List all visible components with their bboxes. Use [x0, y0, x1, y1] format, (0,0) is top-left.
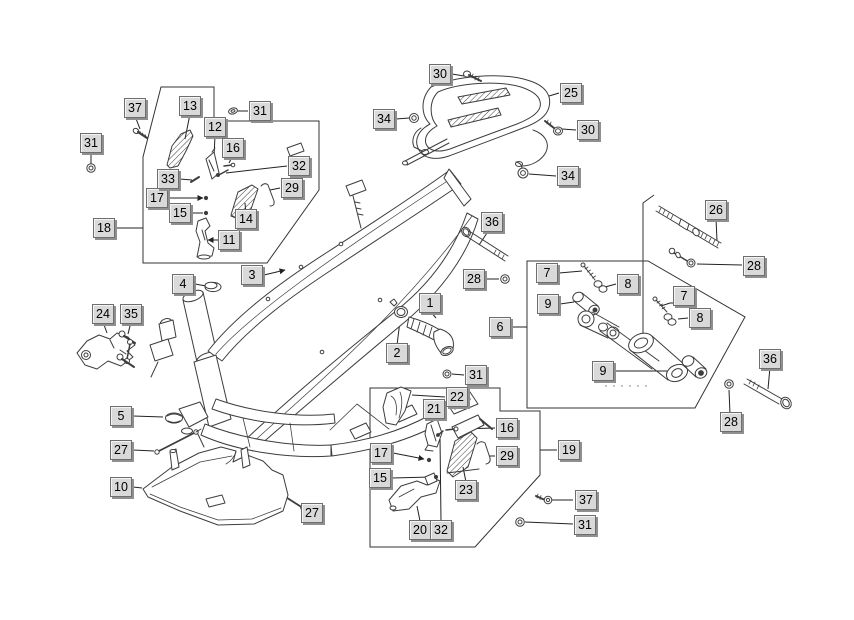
callout-1[interactable]: 1	[419, 293, 441, 313]
parts-diagram-page: 1 2 3 4 5 6 7 7 8 8 9 9 10 11 12 13 14 1…	[0, 0, 854, 620]
callout-7-left[interactable]: 7	[536, 263, 558, 283]
callout-31-bottom[interactable]: 31	[574, 515, 596, 535]
callout-36-upper[interactable]: 36	[481, 212, 503, 232]
callout-27-rear[interactable]: 27	[301, 503, 323, 523]
callout-12[interactable]: 12	[204, 117, 226, 137]
callout-30-right[interactable]: 30	[577, 120, 599, 140]
bolt-part-30-right	[545, 120, 563, 135]
callout-21[interactable]: 21	[423, 399, 445, 419]
callout-14[interactable]: 14	[235, 209, 257, 229]
rod-part-27-front	[155, 429, 201, 454]
callout-29-lower[interactable]: 29	[496, 446, 518, 466]
screw-part-37-bottom	[536, 494, 552, 504]
callout-37-lower[interactable]: 37	[575, 490, 597, 510]
callout-32-lower[interactable]: 32	[430, 520, 452, 540]
callout-34-left[interactable]: 34	[373, 109, 395, 129]
callout-16-lower[interactable]: 16	[496, 418, 518, 438]
callout-34-right[interactable]: 34	[557, 166, 579, 186]
cap-part-4	[205, 282, 221, 291]
callout-17-upper[interactable]: 17	[146, 188, 168, 208]
cap-part-5	[166, 413, 183, 423]
callout-31-top[interactable]: 31	[249, 101, 271, 121]
callout-16-upper[interactable]: 16	[222, 138, 244, 158]
luggage-rack-part-25	[403, 76, 550, 171]
callout-9-right[interactable]: 9	[592, 361, 614, 381]
callout-20[interactable]: 20	[409, 520, 431, 540]
callout-3[interactable]: 3	[241, 265, 263, 285]
nut-part-31-mid	[443, 370, 451, 378]
callout-8-left[interactable]: 8	[617, 274, 639, 294]
callout-8-right[interactable]: 8	[689, 308, 711, 328]
callout-28-left[interactable]: 28	[463, 269, 485, 289]
callout-13[interactable]: 13	[179, 96, 201, 116]
callout-17-lower[interactable]: 17	[370, 443, 392, 463]
nut-part-31-bottom	[516, 518, 525, 527]
floor-panel-part-10	[143, 447, 288, 525]
callout-7-right[interactable]: 7	[673, 286, 695, 306]
nut-part-34-right	[518, 168, 528, 178]
callout-26[interactable]: 26	[705, 200, 727, 220]
callout-36-lower[interactable]: 36	[759, 349, 781, 369]
callout-24[interactable]: 24	[92, 304, 114, 324]
nut-part-28-left	[501, 275, 510, 284]
bolt-washer-part-28-upper	[669, 248, 695, 267]
callout-6[interactable]: 6	[489, 317, 511, 337]
callout-27-front[interactable]: 27	[110, 440, 132, 460]
nut-part-28-lower	[725, 380, 734, 389]
callout-22[interactable]: 22	[446, 387, 468, 407]
callout-35[interactable]: 35	[120, 304, 142, 324]
intake-duct-part-1	[407, 317, 455, 357]
callout-9-left[interactable]: 9	[537, 294, 559, 314]
callout-15-lower[interactable]: 15	[369, 468, 391, 488]
callout-11[interactable]: 11	[218, 230, 240, 250]
callout-4[interactable]: 4	[172, 274, 194, 294]
callout-19[interactable]: 19	[558, 440, 580, 460]
callout-15-upper[interactable]: 15	[169, 203, 191, 223]
callout-30-left[interactable]: 30	[429, 64, 451, 84]
callout-28-bottom[interactable]: 28	[720, 412, 742, 432]
callout-31-mid[interactable]: 31	[465, 365, 487, 385]
callout-18[interactable]: 18	[93, 218, 115, 238]
callout-23[interactable]: 23	[455, 480, 477, 500]
callout-31-far-left[interactable]: 31	[80, 133, 102, 153]
callout-25[interactable]: 25	[560, 83, 582, 103]
callout-28-right[interactable]: 28	[743, 256, 765, 276]
callout-29-upper[interactable]: 29	[281, 178, 303, 198]
callout-5[interactable]: 5	[110, 406, 132, 426]
callout-33[interactable]: 33	[157, 169, 179, 189]
callout-10[interactable]: 10	[110, 477, 132, 497]
callout-32-upper[interactable]: 32	[288, 156, 310, 176]
nut-part-34-left	[410, 114, 419, 123]
callout-37-upper[interactable]: 37	[124, 98, 146, 118]
callout-2[interactable]: 2	[386, 343, 408, 363]
